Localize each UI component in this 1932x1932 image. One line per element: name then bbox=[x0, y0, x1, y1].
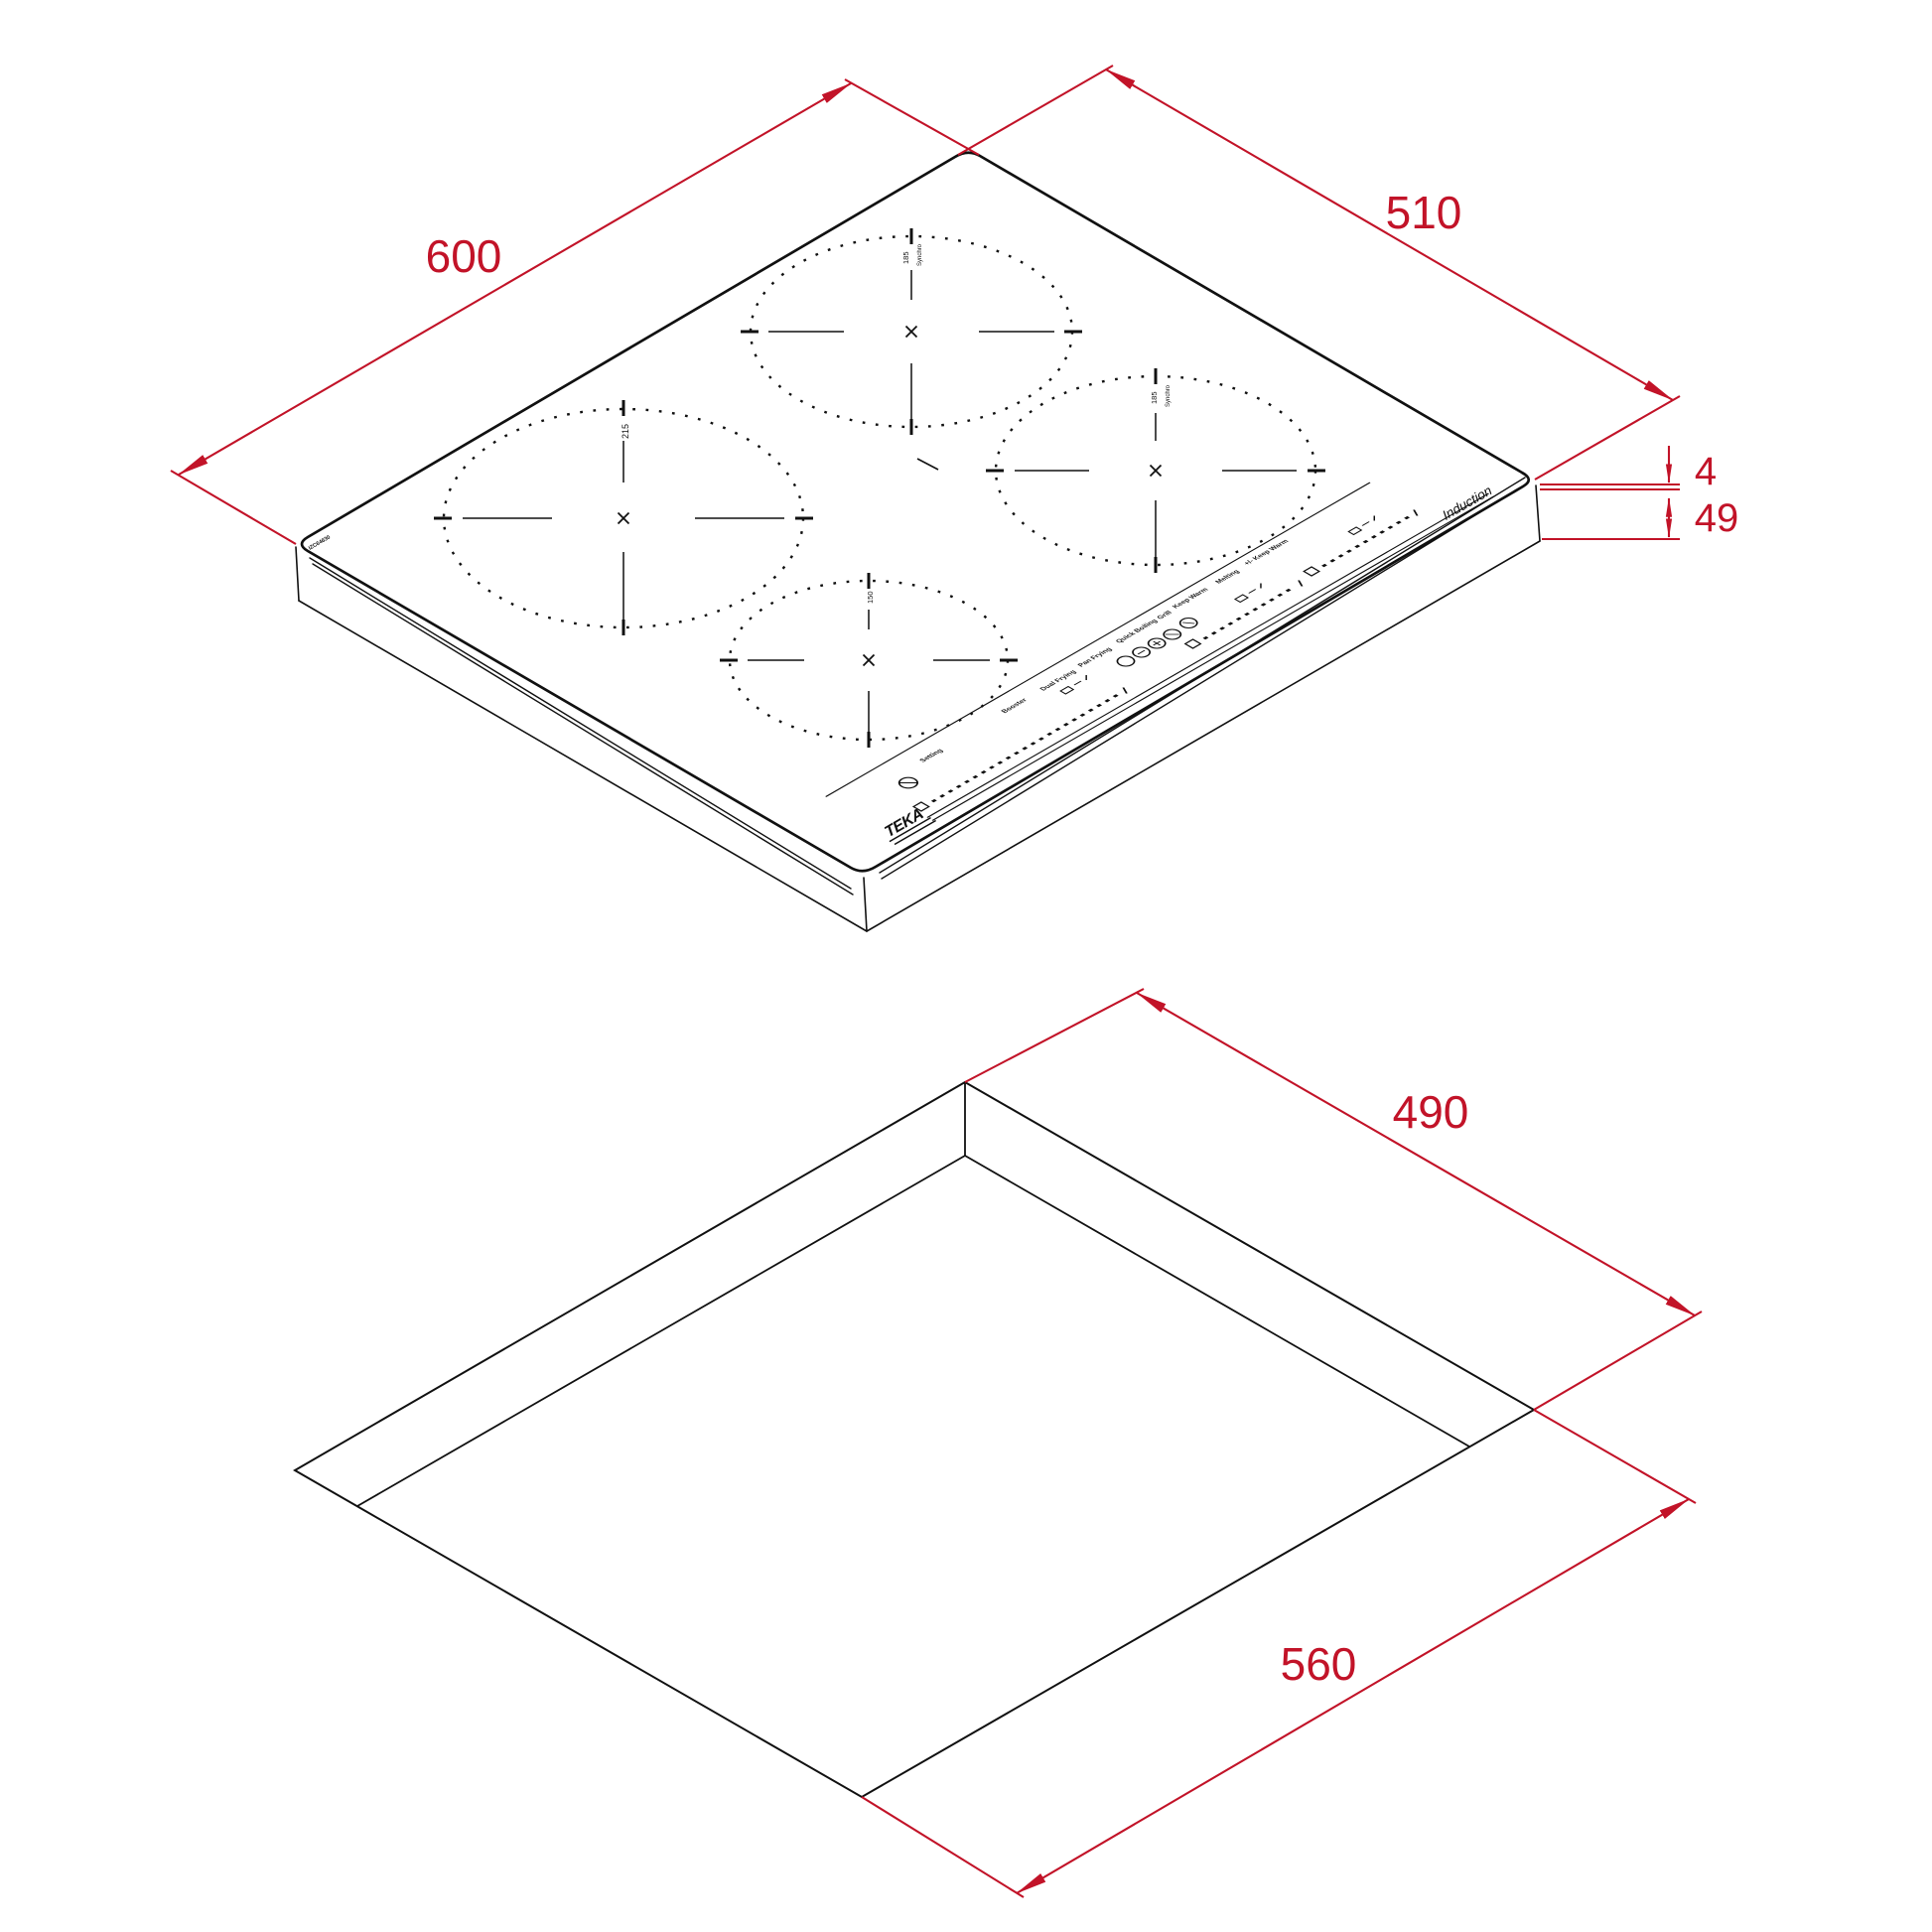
svg-text:49: 49 bbox=[1695, 496, 1739, 540]
svg-text:4: 4 bbox=[1695, 450, 1717, 493]
svg-text:510: 510 bbox=[1386, 187, 1462, 238]
svg-text:185: 185 bbox=[1150, 391, 1159, 404]
svg-text:Synchro: Synchro bbox=[1166, 384, 1172, 407]
svg-text:490: 490 bbox=[1393, 1086, 1469, 1138]
svg-text:215: 215 bbox=[621, 424, 630, 439]
svg-text:185: 185 bbox=[901, 251, 910, 264]
svg-text:560: 560 bbox=[1281, 1638, 1357, 1690]
svg-text:150: 150 bbox=[866, 591, 875, 604]
svg-text:600: 600 bbox=[426, 230, 502, 282]
svg-text:Synchro: Synchro bbox=[917, 243, 923, 266]
